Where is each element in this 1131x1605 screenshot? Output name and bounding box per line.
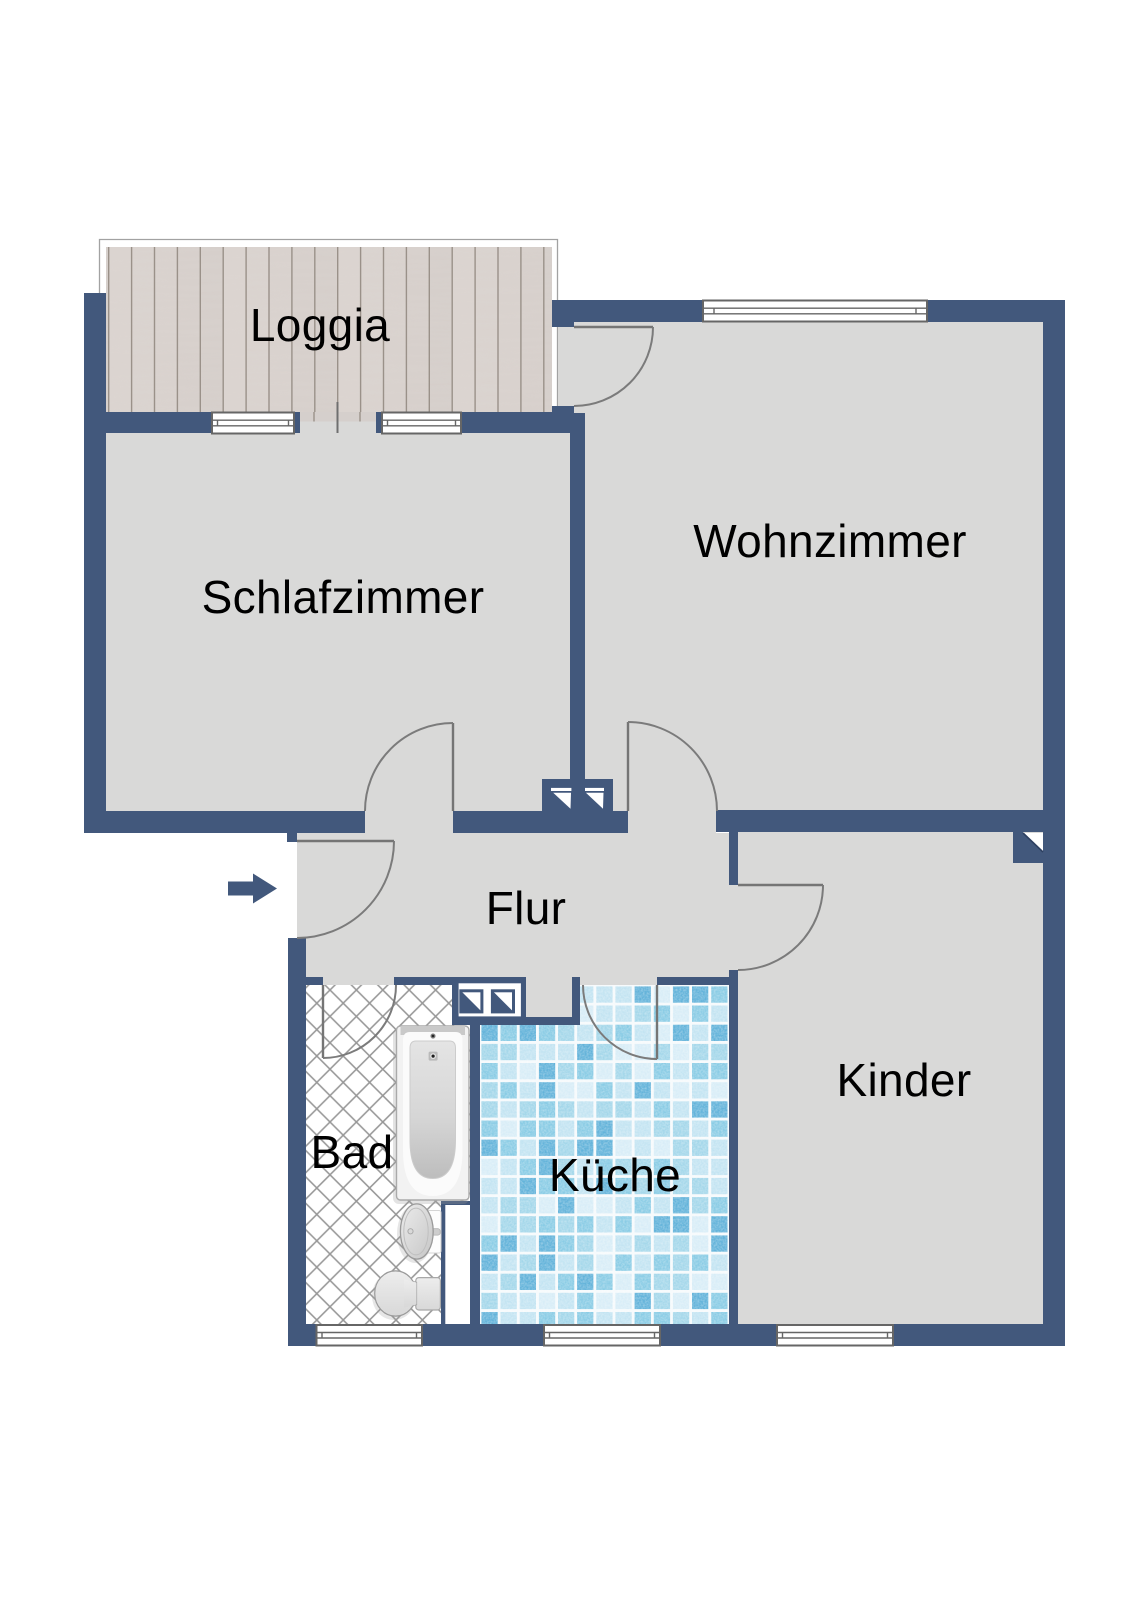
- svg-text:Loggia: Loggia: [250, 299, 390, 351]
- svg-text:Kinder: Kinder: [836, 1054, 971, 1106]
- svg-text:Bad: Bad: [311, 1126, 394, 1178]
- svg-text:Wohnzimmer: Wohnzimmer: [693, 515, 967, 567]
- svg-text:Küche: Küche: [549, 1149, 681, 1201]
- svg-text:Schlafzimmer: Schlafzimmer: [202, 571, 485, 623]
- svg-text:Flur: Flur: [486, 882, 567, 934]
